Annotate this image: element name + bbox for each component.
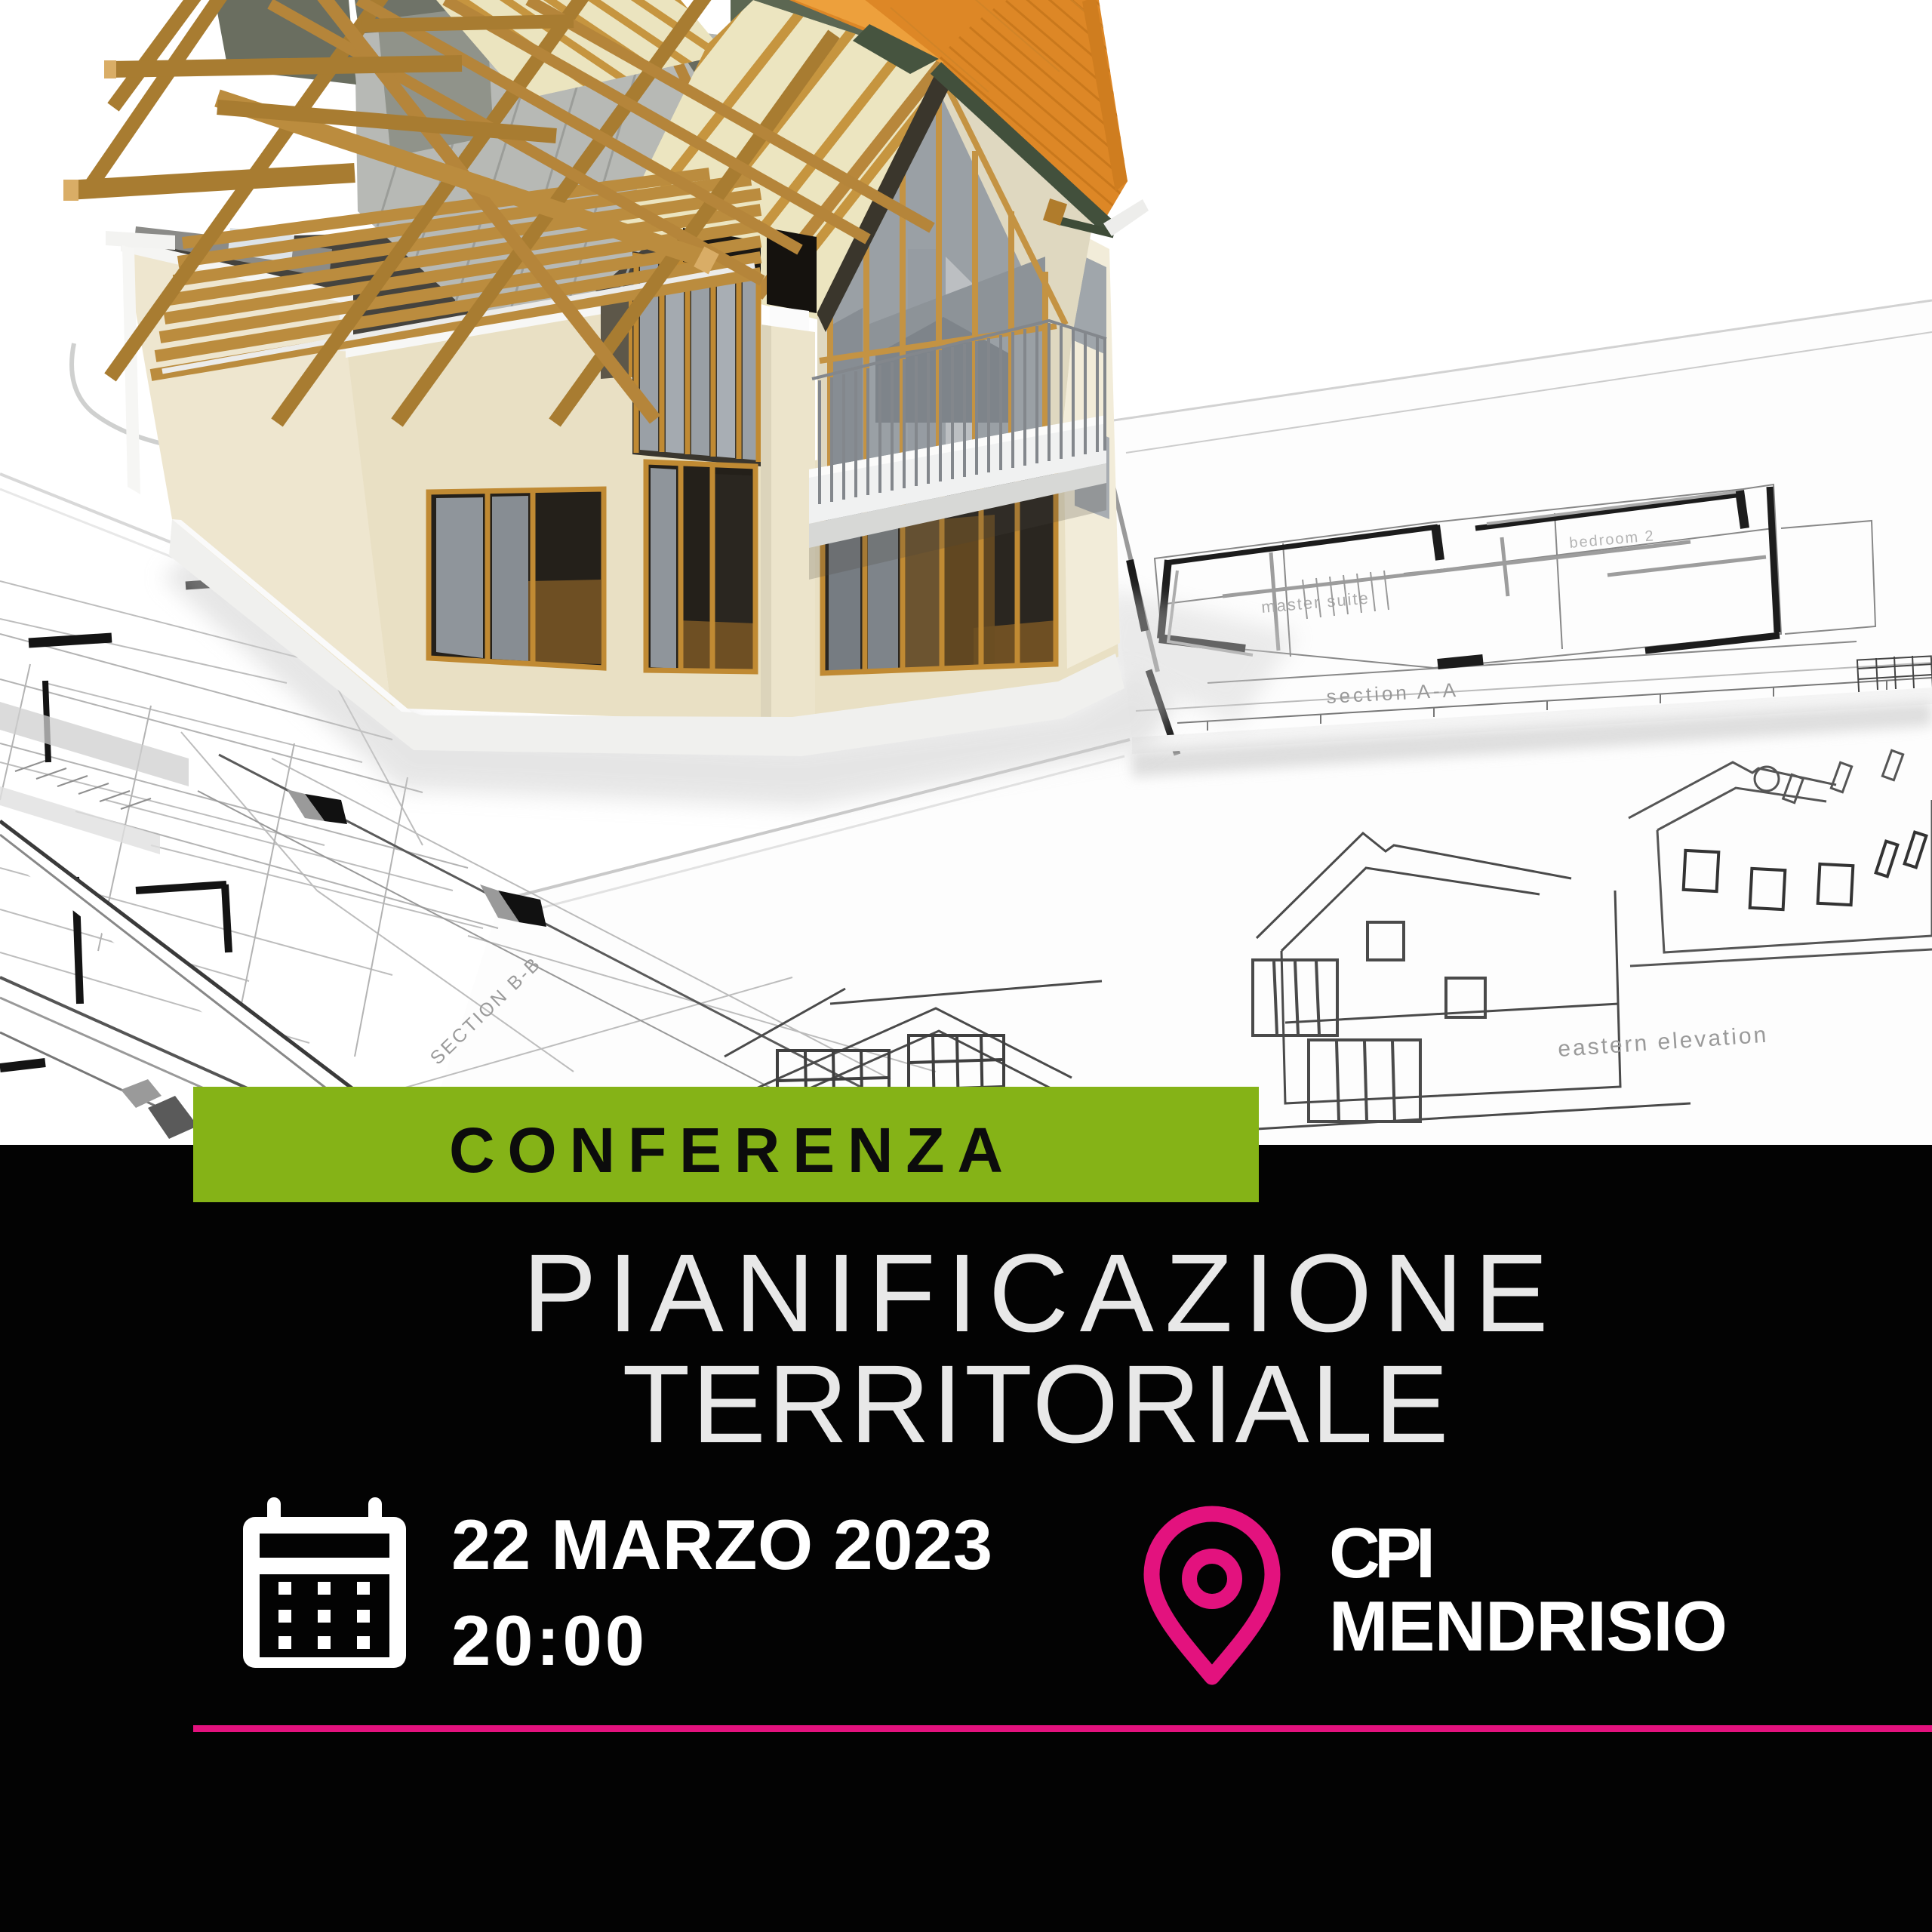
svg-text:22 MARZO 2023: 22 MARZO 2023 — [451, 1505, 992, 1584]
svg-text:20:00: 20:00 — [451, 1601, 645, 1680]
svg-text:MENDRISIO: MENDRISIO — [1329, 1586, 1727, 1666]
svg-text:CPI: CPI — [1329, 1513, 1435, 1592]
svg-text:PIANIFICAZIONE: PIANIFICAZIONE — [523, 1232, 1549, 1355]
svg-text:TERRITORIALE: TERRITORIALE — [623, 1343, 1449, 1466]
